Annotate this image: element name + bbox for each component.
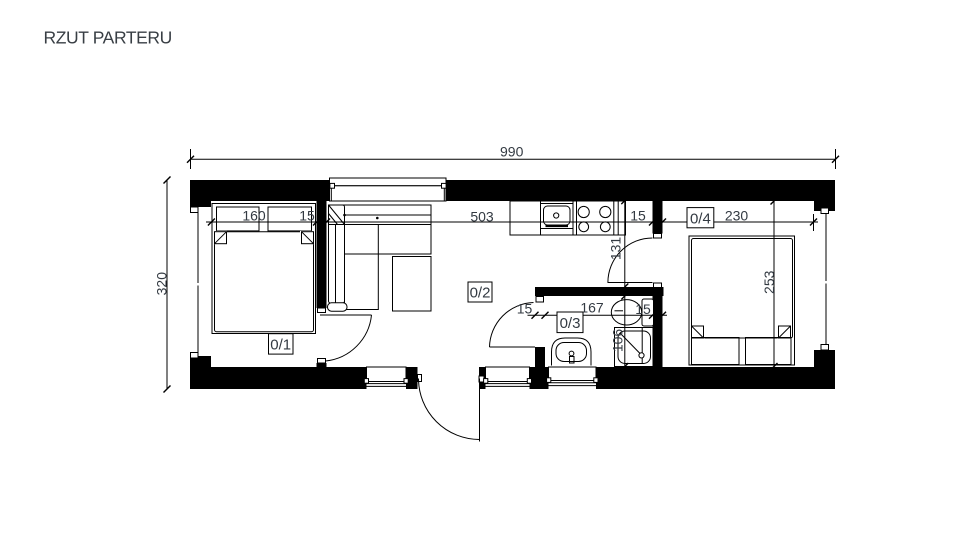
- svg-text:253: 253: [761, 270, 777, 294]
- svg-text:15: 15: [630, 208, 646, 224]
- svg-text:503: 503: [470, 209, 494, 225]
- svg-text:0/3: 0/3: [560, 315, 581, 332]
- svg-text:160: 160: [242, 208, 266, 224]
- svg-text:0/2: 0/2: [470, 285, 491, 302]
- svg-text:0/4: 0/4: [690, 210, 711, 227]
- svg-text:15: 15: [635, 301, 651, 317]
- svg-text:0/1: 0/1: [270, 337, 291, 354]
- svg-text:RZUT PARTERU: RZUT PARTERU: [44, 27, 172, 47]
- svg-text:990: 990: [500, 144, 524, 160]
- svg-text:15: 15: [517, 301, 533, 317]
- svg-text:15: 15: [299, 208, 315, 224]
- svg-text:131: 131: [608, 237, 624, 261]
- svg-text:230: 230: [725, 208, 749, 224]
- svg-text:167: 167: [580, 300, 604, 316]
- svg-text:106: 106: [610, 329, 626, 353]
- svg-text:320: 320: [153, 272, 169, 296]
